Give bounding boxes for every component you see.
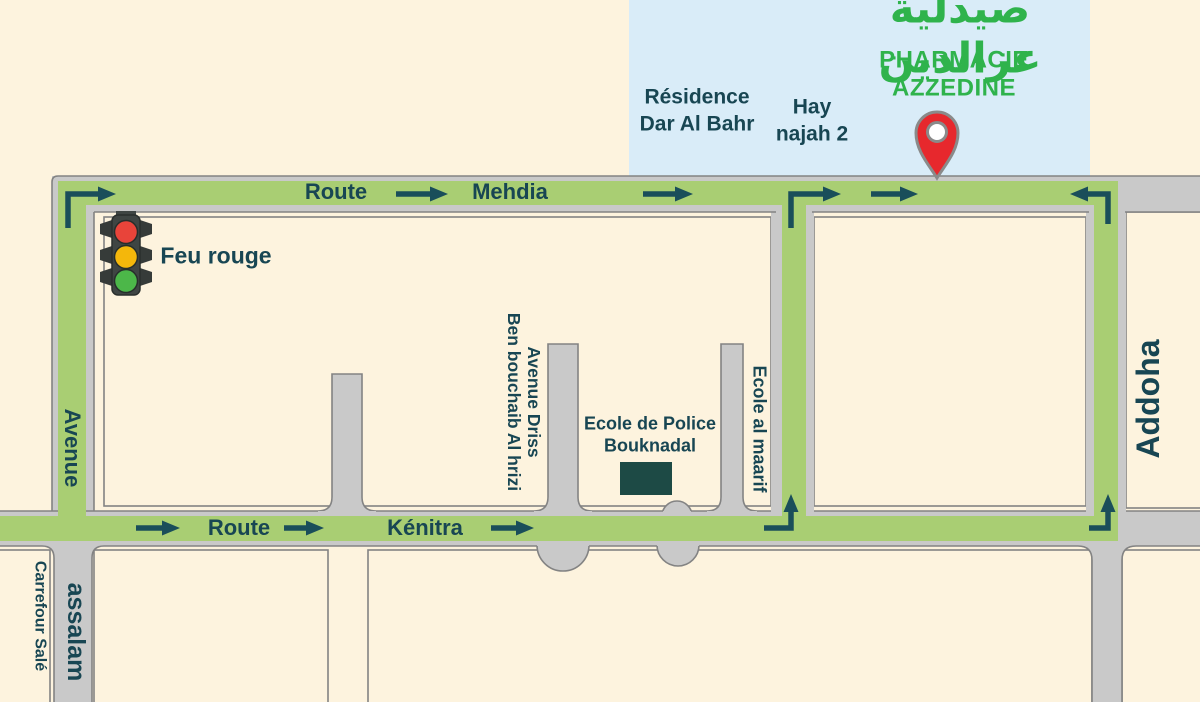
green-light [115,270,138,293]
map-canvas [0,0,1200,702]
residence-dar-al-bahr-label: Résidence Dar Al Bahr [640,84,755,139]
hay-najah-2-label: Hay najah 2 [776,94,848,149]
city-blocks [0,212,1200,702]
pharmacy-access-map: صيدلية عزالدين PHARMACIE AZZEDINE Réside… [0,0,1200,702]
block-south-2 [368,550,1092,702]
block-south-1 [94,550,328,702]
carrefour-sale-label: Carrefour Salé [30,561,49,671]
feu-rouge-label: Feu rouge [160,242,271,269]
assalam-label: assalam [60,583,90,682]
route-mehdia-word2: Mehdia [472,179,548,205]
ecole-al-maarif-label: Ecole al maarif [748,365,769,492]
avenue-label: Avenue [59,409,85,488]
block-right [814,217,1086,506]
traffic-light-icon [100,211,152,295]
green-vertical-west [782,205,806,541]
block-south-3 [1122,550,1200,702]
route-mehdia-word1: Route [305,179,367,205]
addoha-label: Addoha [1130,339,1168,458]
pharmacy-name-french: PHARMACIE AZZEDINE [831,47,1077,104]
ecole-de-police-label: Ecole de Police Bouknadal [584,413,716,456]
avenue-driss-label: Avenue Driss Ben bouchaib Al hrizi [504,313,544,491]
green-vertical-east [1094,205,1118,541]
police-school-building [620,462,672,495]
route-kenitra-word1: Route [208,515,270,541]
red-light [115,221,138,244]
route-kenitra-word2: Kénitra [387,515,463,541]
amber-light [115,246,138,269]
